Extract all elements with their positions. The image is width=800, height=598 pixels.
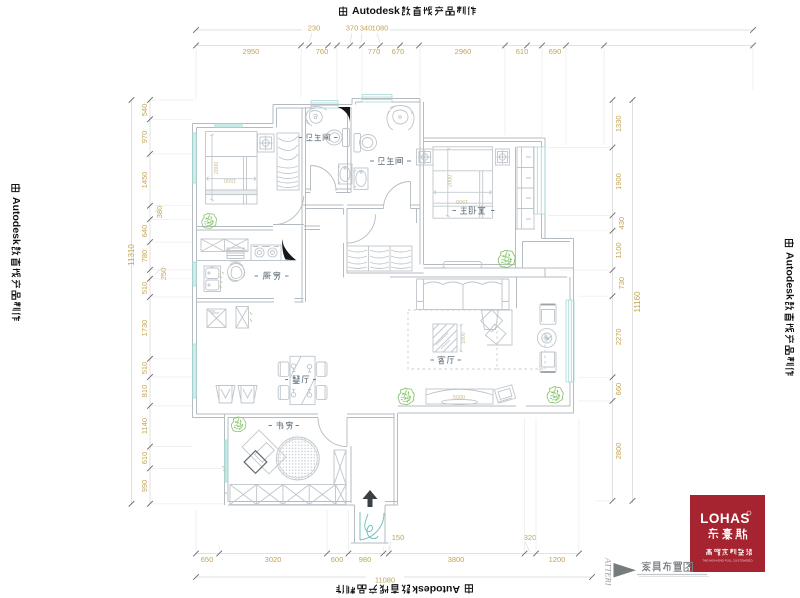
svg-text:1080: 1080 — [372, 24, 389, 33]
svg-text:1800: 1800 — [461, 332, 467, 343]
svg-text:1140: 1140 — [140, 418, 149, 434]
svg-text:610: 610 — [516, 47, 529, 56]
svg-text:810: 810 — [140, 385, 149, 398]
svg-text:980: 980 — [359, 555, 372, 564]
svg-text:2800: 2800 — [614, 443, 623, 460]
svg-text:990: 990 — [140, 480, 149, 493]
svg-text:340: 340 — [360, 24, 373, 33]
svg-text:150: 150 — [392, 533, 405, 542]
svg-text:1730: 1730 — [140, 320, 149, 337]
svg-text:1330: 1330 — [614, 115, 623, 132]
svg-text:1200: 1200 — [549, 555, 566, 564]
svg-text:510: 510 — [140, 282, 149, 295]
svg-text:11160: 11160 — [633, 291, 642, 313]
svg-text:640: 640 — [140, 225, 149, 238]
svg-text:540: 540 — [140, 104, 149, 117]
svg-text:730: 730 — [617, 277, 626, 290]
svg-text:ATTERI: ATTERI — [604, 557, 614, 587]
svg-text:1900: 1900 — [614, 173, 623, 190]
svg-text:320: 320 — [524, 533, 537, 542]
svg-text:970: 970 — [140, 131, 149, 144]
svg-text:380: 380 — [155, 206, 164, 219]
svg-text:LOHAS: LOHAS — [700, 511, 750, 526]
svg-text:760: 760 — [316, 47, 329, 56]
svg-text:670: 670 — [392, 47, 405, 56]
svg-text:770: 770 — [368, 47, 381, 56]
svg-text:1100: 1100 — [614, 242, 623, 258]
svg-text:650: 650 — [201, 555, 214, 564]
svg-text:780: 780 — [140, 250, 149, 263]
svg-text:3020: 3020 — [265, 555, 282, 564]
svg-text:600: 600 — [331, 555, 344, 564]
svg-text:1450: 1450 — [140, 172, 149, 189]
svg-text:2270: 2270 — [614, 328, 623, 345]
svg-text:3800: 3800 — [448, 555, 465, 564]
svg-text:11080: 11080 — [375, 576, 395, 585]
svg-text:2000: 2000 — [448, 175, 454, 187]
svg-text:690: 690 — [549, 47, 562, 56]
svg-text:THE HIGH-END FULL CUSTOMIZED: THE HIGH-END FULL CUSTOMIZED — [702, 559, 753, 563]
svg-text:610: 610 — [140, 452, 149, 465]
svg-text:1500: 1500 — [224, 177, 236, 183]
svg-text:370: 370 — [346, 24, 359, 33]
svg-text:430: 430 — [617, 217, 626, 230]
svg-text:2950: 2950 — [243, 47, 260, 56]
svg-text:1900: 1900 — [456, 198, 468, 204]
svg-text:660: 660 — [614, 383, 623, 396]
svg-text:2960: 2960 — [455, 47, 472, 56]
svg-text:11310: 11310 — [127, 244, 136, 266]
svg-text:2000: 2000 — [214, 162, 220, 174]
svg-text:5000: 5000 — [453, 395, 465, 401]
svg-text:510: 510 — [140, 362, 149, 375]
svg-text:230: 230 — [308, 24, 321, 33]
